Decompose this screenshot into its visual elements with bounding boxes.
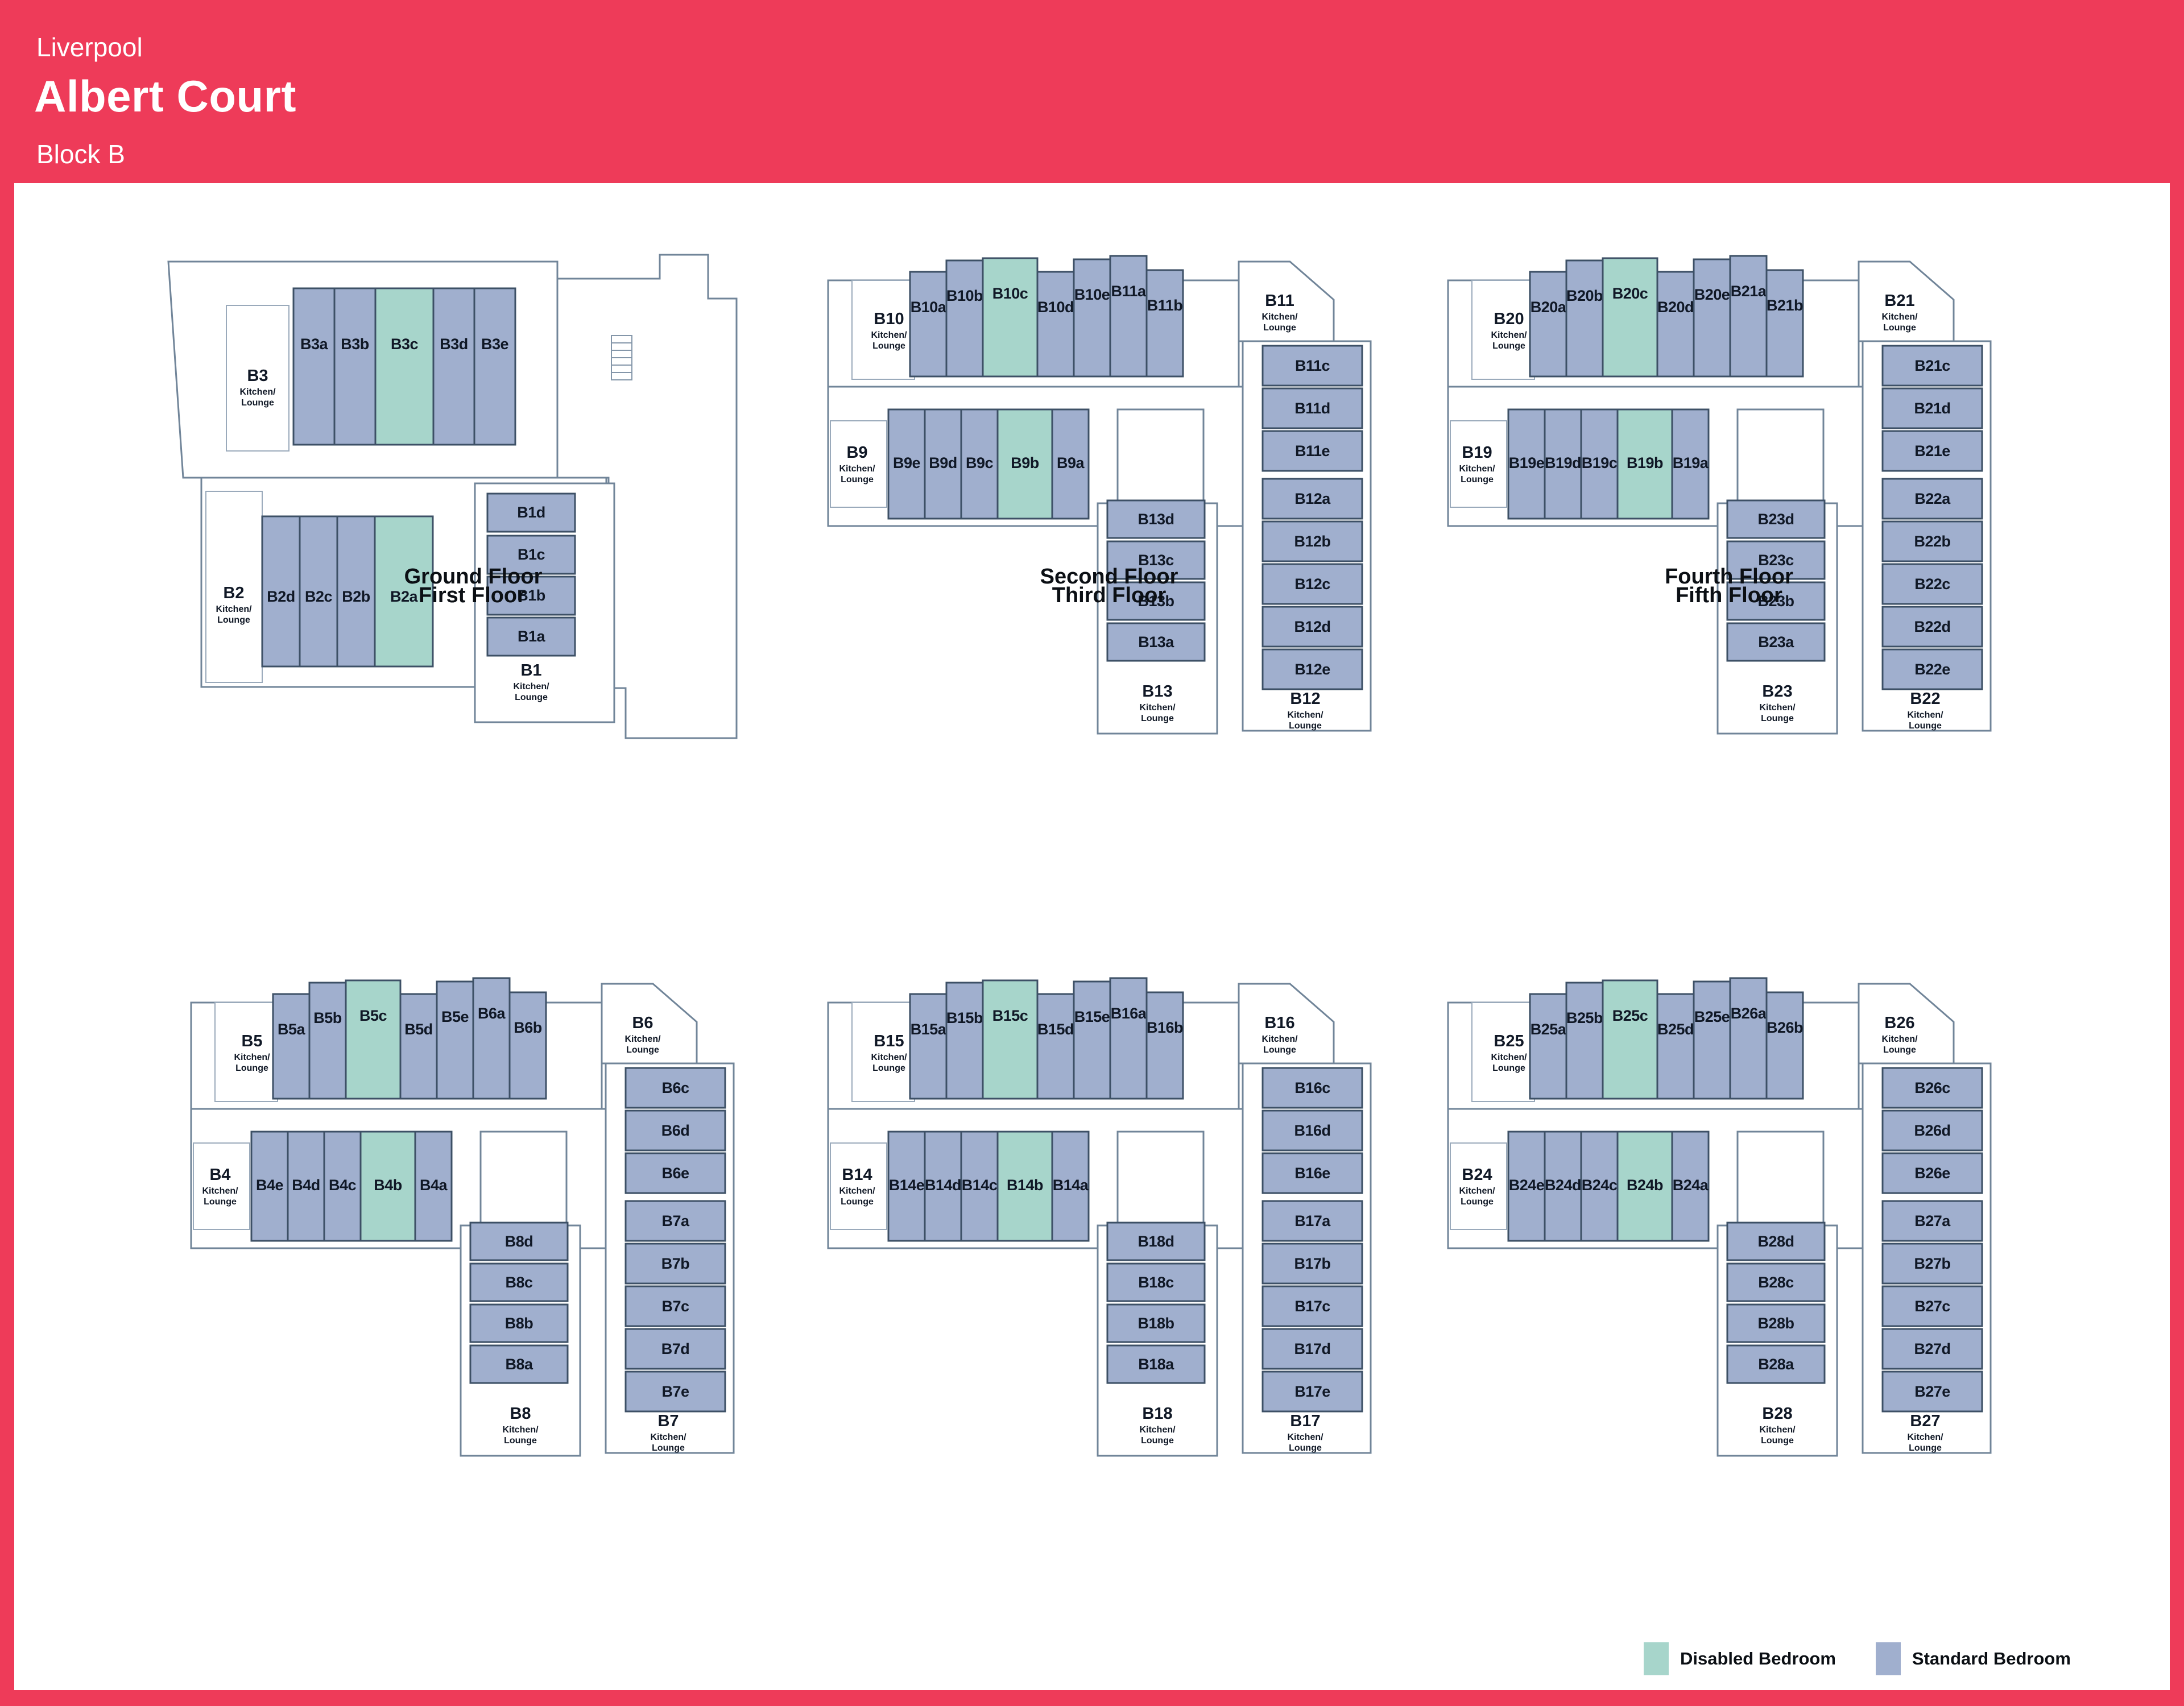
kitchen-sub-label: Kitchen/ bbox=[1459, 1186, 1495, 1196]
room-B5c bbox=[346, 980, 400, 1099]
room-B3b bbox=[334, 288, 375, 445]
kitchen-label-B16: B16 bbox=[1264, 1014, 1294, 1032]
room-label: B17b bbox=[1294, 1255, 1330, 1272]
kitchen-sub-label: Kitchen/ bbox=[1907, 1432, 1943, 1442]
room-B5e bbox=[437, 982, 473, 1099]
room-B11b bbox=[1147, 270, 1183, 376]
room-label: B1a bbox=[518, 628, 546, 645]
page-border-right bbox=[2170, 183, 2184, 1690]
room-label: B1d bbox=[517, 504, 545, 521]
building-outline bbox=[1118, 1132, 1203, 1224]
legend-label: Standard Bedroom bbox=[1912, 1649, 2071, 1669]
kitchen-label-B3: B3 bbox=[247, 367, 268, 385]
room-B5a bbox=[273, 994, 309, 1099]
kitchen-sub-label: Kitchen/ bbox=[1491, 1053, 1527, 1062]
room-label: B10e bbox=[1074, 286, 1110, 303]
room-label: B17c bbox=[1294, 1298, 1330, 1315]
floor-ground: B3aB3bB3cB3dB3eB2dB2cB2bB2aB1dB1cB1bB1aB… bbox=[159, 245, 762, 881]
room-label: B20c bbox=[1612, 285, 1648, 302]
floor-first: B5aB5bB5cB5dB5eB6aB6bB4eB4dB4cB4bB4aB6cB… bbox=[188, 967, 791, 1604]
room-label: B24d bbox=[1545, 1177, 1581, 1194]
room-label: B9e bbox=[893, 454, 921, 471]
room-label: B11a bbox=[1111, 283, 1147, 300]
room-label: B14c bbox=[962, 1177, 998, 1194]
kitchen-sub-label: Lounge bbox=[1761, 714, 1794, 723]
room-label: B25d bbox=[1657, 1021, 1694, 1038]
kitchen-label-B21: B21 bbox=[1884, 292, 1914, 310]
kitchen-label-B1: B1 bbox=[520, 661, 541, 680]
room-label: B9d bbox=[929, 454, 957, 471]
room-label: B27a bbox=[1914, 1212, 1951, 1229]
room-B20a bbox=[1530, 272, 1566, 376]
kitchen-sub-label: Lounge bbox=[626, 1045, 659, 1055]
kitchen-sub-label: Kitchen/ bbox=[1907, 710, 1943, 720]
room-label: B10a bbox=[911, 299, 947, 316]
room-B10d bbox=[1037, 272, 1074, 376]
room-label: B4c bbox=[329, 1177, 357, 1194]
kitchen-sub-label: Lounge bbox=[1289, 721, 1322, 731]
room-label: B8b bbox=[505, 1315, 533, 1332]
kitchen-sub-label: Kitchen/ bbox=[1881, 1034, 1918, 1044]
room-label: B11b bbox=[1147, 297, 1183, 314]
room-label: B12e bbox=[1294, 661, 1330, 678]
room-label: B18d bbox=[1137, 1233, 1174, 1250]
room-label: B12a bbox=[1294, 490, 1331, 507]
floor-title-fifth: Fifth Floor bbox=[1530, 583, 1928, 608]
kitchen-sub-label: Lounge bbox=[872, 341, 905, 351]
room-label: B7c bbox=[661, 1298, 689, 1315]
room-B25e bbox=[1694, 982, 1730, 1099]
room-label: B8a bbox=[505, 1356, 533, 1373]
kitchen-sub-label: Kitchen/ bbox=[1287, 1432, 1323, 1442]
room-label: B4e bbox=[256, 1177, 284, 1194]
kitchen-sub-label: Kitchen/ bbox=[650, 1432, 686, 1442]
kitchen-sub-label: Lounge bbox=[652, 1443, 685, 1453]
kitchen-label-B4: B4 bbox=[209, 1166, 230, 1184]
room-label: B27c bbox=[1914, 1298, 1950, 1315]
room-label: B22e bbox=[1914, 661, 1950, 678]
kitchen-sub-label: Lounge bbox=[1492, 341, 1525, 351]
room-label: B6b bbox=[514, 1019, 542, 1036]
kitchen-label-B7: B7 bbox=[657, 1412, 679, 1430]
kitchen-sub-label: Kitchen/ bbox=[202, 1186, 238, 1196]
room-label: B15d bbox=[1037, 1021, 1074, 1038]
room-label: B18c bbox=[1138, 1274, 1174, 1291]
building-outline bbox=[1118, 409, 1203, 502]
floor-plan-second: B10aB10bB10cB10dB10eB11aB11bB9eB9dB9cB9b… bbox=[825, 245, 1428, 802]
room-label: B7a bbox=[661, 1212, 690, 1229]
room-label: B20b bbox=[1566, 287, 1603, 304]
room-label: B4d bbox=[292, 1177, 320, 1194]
room-label: B25b bbox=[1566, 1009, 1603, 1026]
room-label: B16e bbox=[1294, 1165, 1330, 1182]
room-label: B21d bbox=[1914, 400, 1950, 417]
room-label: B27b bbox=[1914, 1255, 1950, 1272]
kitchen-sub-label: Lounge bbox=[241, 398, 274, 408]
kitchen-sub-label: Kitchen/ bbox=[1139, 1425, 1176, 1435]
room-B15e bbox=[1074, 982, 1110, 1099]
building-outline bbox=[1738, 1132, 1823, 1224]
room-label: B6d bbox=[661, 1122, 690, 1139]
room-label: B6e bbox=[661, 1165, 689, 1182]
room-B3d bbox=[433, 288, 474, 445]
room-label: B17a bbox=[1294, 1212, 1331, 1229]
room-label: B6a bbox=[478, 1005, 506, 1022]
floor-plan-fifth: B25aB25bB25cB25dB25eB26aB26bB24eB24dB24c… bbox=[1445, 967, 2047, 1524]
floor-plan-fourth: B20aB20bB20cB20dB20eB21aB21bB19eB19dB19c… bbox=[1445, 245, 2047, 802]
room-label: B8d bbox=[505, 1233, 533, 1250]
kitchen-sub-label: Kitchen/ bbox=[234, 1053, 270, 1062]
room-label: B25c bbox=[1612, 1007, 1648, 1024]
room-label: B5a bbox=[278, 1021, 306, 1038]
legend-item-standard: Standard Bedroom bbox=[1876, 1642, 2071, 1675]
room-B25c bbox=[1603, 980, 1657, 1099]
room-B26b bbox=[1767, 992, 1803, 1099]
kitchen-label-B8: B8 bbox=[510, 1405, 531, 1423]
room-label: B16c bbox=[1294, 1079, 1330, 1096]
kitchen-sub-label: Lounge bbox=[1141, 1436, 1174, 1446]
kitchen-sub-label: Kitchen/ bbox=[239, 387, 276, 397]
room-label: B9b bbox=[1011, 454, 1039, 471]
room-B15d bbox=[1037, 994, 1074, 1099]
floor-fifth: B25aB25bB25cB25dB25eB26aB26bB24eB24dB24c… bbox=[1445, 967, 2047, 1604]
legend-item-disabled: Disabled Bedroom bbox=[1644, 1642, 1836, 1675]
room-label: B3b bbox=[341, 336, 369, 353]
room-B21a bbox=[1730, 256, 1767, 376]
room-B6b bbox=[510, 992, 546, 1099]
kitchen-sub-label: Lounge bbox=[515, 693, 548, 702]
room-label: B14e bbox=[889, 1177, 925, 1194]
floor-second: B10aB10bB10cB10dB10eB11aB11bB9eB9dB9cB9b… bbox=[825, 245, 1428, 881]
room-label: B13d bbox=[1137, 511, 1174, 528]
kitchen-sub-label: Lounge bbox=[1492, 1063, 1525, 1073]
room-label: B19e bbox=[1509, 454, 1545, 471]
room-label: B10d bbox=[1037, 299, 1074, 316]
kitchen-sub-label: Kitchen/ bbox=[1287, 710, 1323, 720]
room-label: B4b bbox=[374, 1177, 402, 1194]
kitchen-label-B2: B2 bbox=[223, 584, 244, 602]
room-label: B22b bbox=[1914, 533, 1950, 550]
room-label: B12d bbox=[1294, 618, 1330, 635]
room-B3c bbox=[375, 288, 433, 445]
page-title: Albert Court bbox=[34, 71, 296, 122]
room-label: B21c bbox=[1914, 357, 1950, 374]
room-label: B3a bbox=[300, 336, 329, 353]
kitchen-sub-label: Kitchen/ bbox=[1759, 703, 1796, 713]
kitchen-sub-label: Lounge bbox=[1289, 1443, 1322, 1453]
kitchen-sub-label: Kitchen/ bbox=[839, 464, 875, 474]
room-label: B24a bbox=[1673, 1177, 1709, 1194]
room-label: B26c bbox=[1914, 1079, 1950, 1096]
room-label: B21b bbox=[1767, 297, 1803, 314]
header-bar: Liverpool Albert Court Block B bbox=[0, 0, 2184, 183]
kitchen-label-B10: B10 bbox=[874, 310, 904, 328]
building-outline bbox=[1472, 280, 1534, 379]
kitchen-label-B27: B27 bbox=[1910, 1412, 1940, 1430]
building-outline bbox=[215, 1003, 278, 1102]
room-B15c bbox=[983, 980, 1037, 1099]
floor-third: B15aB15bB15cB15dB15eB16aB16bB14eB14dB14c… bbox=[825, 967, 1428, 1604]
room-label: B17d bbox=[1294, 1340, 1330, 1357]
kitchen-sub-label: Lounge bbox=[1263, 323, 1296, 333]
kitchen-label-B24: B24 bbox=[1462, 1166, 1492, 1184]
legend-label: Disabled Bedroom bbox=[1680, 1649, 1836, 1669]
kitchen-sub-label: Kitchen/ bbox=[502, 1425, 539, 1435]
room-label: B22a bbox=[1914, 490, 1951, 507]
disabled-bedroom-swatch-icon bbox=[1644, 1642, 1669, 1675]
kitchen-sub-label: Lounge bbox=[1883, 323, 1916, 333]
kitchen-label-B14: B14 bbox=[842, 1166, 872, 1184]
room-label: B3d bbox=[440, 336, 468, 353]
floor-fourth: B20aB20bB20cB20dB20eB21aB21bB19eB19dB19c… bbox=[1445, 245, 2047, 881]
room-label: B15e bbox=[1074, 1008, 1110, 1025]
room-label: B6c bbox=[661, 1079, 689, 1096]
page-border-bottom bbox=[0, 1690, 2184, 1706]
room-B16a bbox=[1110, 978, 1147, 1099]
page-border-left bbox=[0, 183, 14, 1690]
room-label: B19b bbox=[1627, 454, 1663, 471]
room-label: B7d bbox=[661, 1340, 690, 1357]
kitchen-label-B18: B18 bbox=[1142, 1405, 1172, 1423]
room-label: B4a bbox=[420, 1177, 448, 1194]
room-label: B25a bbox=[1531, 1021, 1567, 1038]
room-B25a bbox=[1530, 994, 1566, 1099]
room-label: B5d bbox=[404, 1021, 433, 1038]
kitchen-sub-label: Lounge bbox=[841, 475, 874, 485]
room-label: B16d bbox=[1294, 1122, 1330, 1139]
floor-plan-third: B15aB15bB15cB15dB15eB16aB16bB14eB14dB14c… bbox=[825, 967, 1428, 1524]
room-label: B28b bbox=[1757, 1315, 1794, 1332]
room-B5d bbox=[400, 994, 437, 1099]
room-B20c bbox=[1603, 258, 1657, 376]
kitchen-sub-label: Lounge bbox=[1263, 1045, 1296, 1055]
room-label: B14d bbox=[925, 1177, 961, 1194]
room-label: B24e bbox=[1509, 1177, 1545, 1194]
room-label: B24c bbox=[1582, 1177, 1618, 1194]
room-label: B1c bbox=[518, 546, 545, 563]
building-outline bbox=[1738, 409, 1823, 502]
room-label: B19c bbox=[1582, 454, 1618, 471]
room-label: B19d bbox=[1545, 454, 1581, 471]
kitchen-sub-label: Kitchen/ bbox=[513, 682, 549, 691]
floor-plan-first: B5aB5bB5cB5dB5eB6aB6bB4eB4dB4cB4bB4aB6cB… bbox=[188, 967, 791, 1524]
room-label: B20d bbox=[1657, 299, 1694, 316]
room-label: B23a bbox=[1758, 633, 1794, 651]
kitchen-label-B11: B11 bbox=[1265, 292, 1294, 310]
room-B16b bbox=[1147, 992, 1183, 1099]
room-B3e bbox=[474, 288, 515, 445]
room-label: B8c bbox=[505, 1274, 533, 1291]
room-label: B21e bbox=[1914, 442, 1950, 459]
kitchen-sub-label: Kitchen/ bbox=[216, 604, 252, 614]
room-label: B17e bbox=[1294, 1383, 1330, 1400]
room-label: B23d bbox=[1757, 511, 1794, 528]
room-B10b bbox=[946, 260, 983, 376]
room-B3a bbox=[293, 288, 334, 445]
room-B21b bbox=[1767, 270, 1803, 376]
kitchen-label-B25: B25 bbox=[1494, 1032, 1524, 1050]
building-outline bbox=[852, 1003, 915, 1102]
kitchen-sub-label: Kitchen/ bbox=[1139, 703, 1176, 713]
room-label: B15a bbox=[911, 1021, 947, 1038]
building-outline bbox=[481, 1132, 566, 1224]
room-label: B3e bbox=[481, 336, 509, 353]
kitchen-sub-label: Lounge bbox=[235, 1063, 268, 1073]
kitchen-sub-label: Lounge bbox=[504, 1436, 537, 1446]
building-outline bbox=[1472, 1003, 1534, 1102]
kitchen-label-B6: B6 bbox=[632, 1014, 653, 1032]
kitchen-sub-label: Lounge bbox=[841, 1197, 874, 1207]
room-label: B15b bbox=[946, 1009, 983, 1026]
kitchen-label-B15: B15 bbox=[874, 1032, 904, 1050]
kitchen-sub-label: Lounge bbox=[1461, 475, 1494, 485]
room-B20b bbox=[1566, 260, 1603, 376]
room-label: B20a bbox=[1531, 299, 1567, 316]
room-B15a bbox=[910, 994, 946, 1099]
kitchen-sub-label: Lounge bbox=[1141, 714, 1174, 723]
room-label: B9a bbox=[1057, 454, 1085, 471]
room-label: B13a bbox=[1138, 633, 1174, 651]
legend: Disabled Bedroom Standard Bedroom bbox=[1644, 1642, 2071, 1675]
room-label: B14b bbox=[1007, 1177, 1043, 1194]
kitchen-sub-label: Kitchen/ bbox=[1881, 312, 1918, 322]
room-label: B7e bbox=[661, 1383, 689, 1400]
kitchen-label-B13: B13 bbox=[1142, 682, 1172, 701]
floor-plan-ground: B3aB3bB3cB3dB3eB2dB2cB2bB2aB1dB1cB1bB1aB… bbox=[159, 245, 762, 802]
room-B25d bbox=[1657, 994, 1694, 1099]
kitchen-label-B12: B12 bbox=[1290, 690, 1320, 708]
room-B15b bbox=[946, 983, 983, 1099]
room-label: B26d bbox=[1914, 1122, 1950, 1139]
room-label: B28c bbox=[1758, 1274, 1794, 1291]
room-B25b bbox=[1566, 983, 1603, 1099]
room-label: B26e bbox=[1914, 1165, 1950, 1182]
kitchen-sub-label: Lounge bbox=[1883, 1045, 1916, 1055]
room-label: B3c bbox=[391, 336, 419, 353]
kitchen-sub-label: Lounge bbox=[1461, 1197, 1494, 1207]
room-label: B11d bbox=[1294, 400, 1330, 417]
room-B20d bbox=[1657, 272, 1694, 376]
kitchen-sub-label: Kitchen/ bbox=[871, 330, 907, 340]
room-B20e bbox=[1694, 259, 1730, 376]
room-label: B5b bbox=[313, 1009, 342, 1026]
room-B10e bbox=[1074, 259, 1110, 376]
kitchen-sub-label: Kitchen/ bbox=[871, 1053, 907, 1062]
kitchen-sub-label: Lounge bbox=[204, 1197, 237, 1207]
room-label: B11c bbox=[1295, 357, 1330, 374]
kitchen-sub-label: Kitchen/ bbox=[1459, 464, 1495, 474]
room-label: B12b bbox=[1294, 533, 1330, 550]
room-B10a bbox=[910, 272, 946, 376]
header-city: Liverpool bbox=[36, 32, 143, 63]
room-B11a bbox=[1110, 256, 1147, 376]
kitchen-sub-label: Lounge bbox=[1909, 721, 1942, 731]
room-label: B21a bbox=[1731, 283, 1767, 300]
kitchen-label-B19: B19 bbox=[1462, 444, 1492, 462]
kitchen-sub-label: Lounge bbox=[1909, 1443, 1942, 1453]
kitchen-label-B26: B26 bbox=[1884, 1014, 1914, 1032]
room-label: B26a bbox=[1731, 1005, 1767, 1022]
room-B5b bbox=[309, 983, 346, 1099]
kitchen-label-B5: B5 bbox=[241, 1032, 262, 1050]
room-label: B18a bbox=[1138, 1356, 1174, 1373]
room-label: B5c bbox=[359, 1007, 387, 1024]
room-label: B14a bbox=[1053, 1177, 1089, 1194]
kitchen-sub-label: Lounge bbox=[1761, 1436, 1794, 1446]
room-label: B16a bbox=[1111, 1005, 1147, 1022]
room-label: B26b bbox=[1767, 1019, 1803, 1036]
room-label: B25e bbox=[1694, 1008, 1730, 1025]
floor-title-third: Third Floor bbox=[910, 583, 1308, 608]
room-label: B10b bbox=[946, 287, 983, 304]
room-label: B7b bbox=[661, 1255, 690, 1272]
room-label: B24b bbox=[1627, 1177, 1663, 1194]
room-label: B19a bbox=[1673, 454, 1709, 471]
kitchen-sub-label: Kitchen/ bbox=[1261, 312, 1298, 322]
kitchen-sub-label: Kitchen/ bbox=[1759, 1425, 1796, 1435]
room-label: B9c bbox=[966, 454, 994, 471]
room-label: B27d bbox=[1914, 1340, 1950, 1357]
kitchen-label-B23: B23 bbox=[1762, 682, 1792, 701]
kitchen-label-B9: B9 bbox=[846, 444, 867, 462]
kitchen-sub-label: Kitchen/ bbox=[839, 1186, 875, 1196]
room-label: B28d bbox=[1757, 1233, 1794, 1250]
room-label: B27e bbox=[1914, 1383, 1950, 1400]
room-B26a bbox=[1730, 978, 1767, 1099]
kitchen-sub-label: Lounge bbox=[217, 615, 250, 625]
room-B10c bbox=[983, 258, 1037, 376]
room-label: B5e bbox=[441, 1008, 469, 1025]
kitchen-label-B22: B22 bbox=[1910, 690, 1940, 708]
room-label: B22d bbox=[1914, 618, 1950, 635]
kitchen-sub-label: Kitchen/ bbox=[624, 1034, 661, 1044]
room-label: B15c bbox=[992, 1007, 1028, 1024]
floor-title-first: First Floor bbox=[273, 583, 671, 608]
room-label: B28a bbox=[1758, 1356, 1794, 1373]
room-label: B18b bbox=[1137, 1315, 1174, 1332]
kitchen-sub-label: Kitchen/ bbox=[1261, 1034, 1298, 1044]
room-label: B16b bbox=[1147, 1019, 1183, 1036]
kitchen-label-B28: B28 bbox=[1762, 1405, 1792, 1423]
kitchen-label-B17: B17 bbox=[1290, 1412, 1320, 1430]
room-B6a bbox=[473, 978, 510, 1099]
room-label: B11e bbox=[1295, 442, 1330, 459]
kitchen-label-B20: B20 bbox=[1494, 310, 1524, 328]
building-outline bbox=[852, 280, 915, 379]
kitchen-sub-label: Kitchen/ bbox=[1491, 330, 1527, 340]
header-block: Block B bbox=[36, 139, 125, 169]
standard-bedroom-swatch-icon bbox=[1876, 1642, 1901, 1675]
room-label: B10c bbox=[992, 285, 1028, 302]
room-label: B20e bbox=[1694, 286, 1730, 303]
kitchen-sub-label: Lounge bbox=[872, 1063, 905, 1073]
